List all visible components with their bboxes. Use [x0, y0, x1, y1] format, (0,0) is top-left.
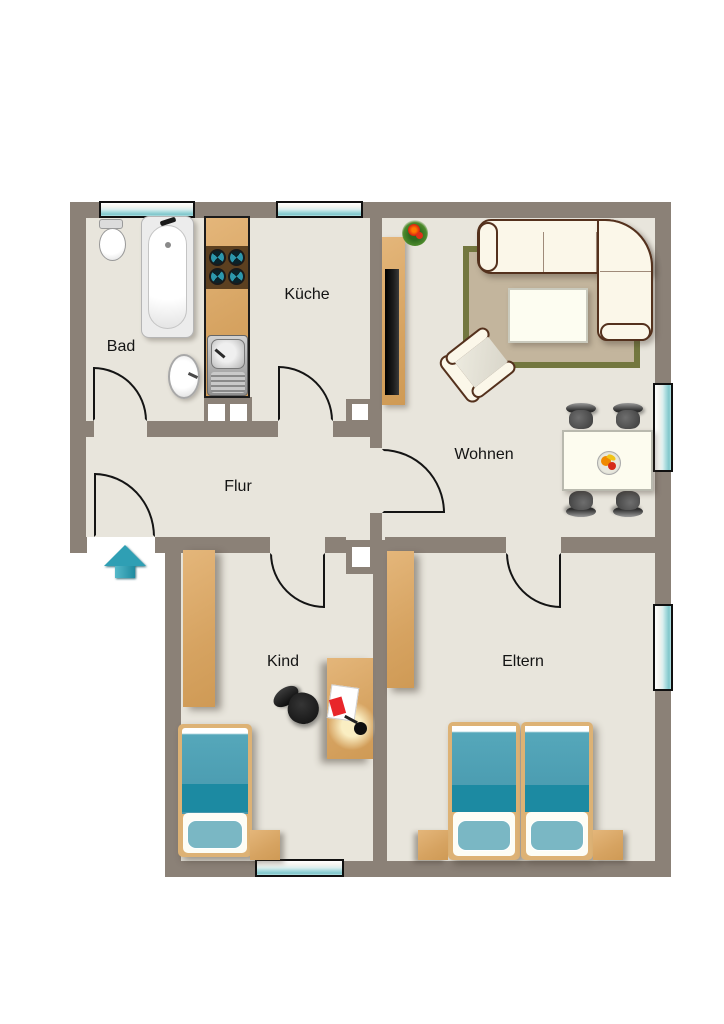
bathtub-icon — [141, 216, 194, 338]
nightstand-icon — [418, 830, 448, 860]
floor-plan: Bad Küche Flur Wohnen Kind Eltern — [0, 0, 724, 1024]
bed-icon — [178, 724, 252, 857]
stove-burner-icon — [228, 268, 245, 285]
chair-seat — [569, 491, 593, 510]
wardrobe-icon — [387, 551, 414, 688]
dining-table-icon — [562, 430, 653, 491]
bathtub-inner — [148, 225, 187, 329]
plant-flower — [416, 232, 423, 239]
wall-kind-eltern — [373, 553, 387, 861]
nightstand-icon — [250, 830, 280, 860]
arrow-head — [104, 545, 146, 566]
stove-icon — [206, 246, 248, 289]
duct-shaft — [352, 547, 370, 567]
sink-basin — [211, 339, 245, 369]
wall-bad-stub — [86, 421, 94, 437]
stove-burner-icon — [209, 268, 226, 285]
nightstand-icon — [593, 830, 623, 860]
bed-band — [182, 784, 248, 812]
stove-burner-icon — [209, 249, 226, 266]
window-eltern — [653, 604, 673, 691]
room-label-wohnen: Wohnen — [454, 446, 513, 464]
plant-icon — [402, 220, 428, 246]
sofa-armrest — [478, 222, 498, 272]
bed-band — [525, 785, 589, 812]
sofa-seam — [543, 232, 544, 272]
kitchen-sink-icon — [207, 335, 248, 396]
arrow-stem — [115, 566, 135, 578]
double-bed-icon — [448, 722, 520, 860]
duct-shaft — [230, 404, 247, 421]
window-kueche — [276, 201, 363, 218]
chair-seat — [616, 491, 640, 510]
bathroom-sink-icon — [168, 354, 200, 399]
chair-icon — [613, 403, 643, 429]
pillow — [530, 820, 584, 851]
pillow — [457, 820, 511, 851]
chair-icon — [566, 491, 596, 517]
wall-mid-b — [325, 537, 346, 553]
chair-seat — [616, 410, 640, 429]
wall-right — [655, 202, 671, 877]
sofa-armrest — [600, 323, 651, 341]
room-label-bad: Bad — [107, 338, 135, 356]
desk-icon — [327, 658, 373, 759]
window-wohnen — [653, 383, 673, 472]
duct-shaft — [208, 404, 225, 421]
tv-icon — [385, 269, 399, 395]
wall-bottom — [165, 861, 671, 877]
sink-drainboard — [211, 372, 245, 393]
wardrobe-icon — [183, 550, 215, 707]
window-kind — [255, 859, 344, 877]
wall-bad-kueche — [147, 421, 278, 437]
coffee-table-icon — [508, 288, 588, 343]
pillow — [187, 820, 243, 849]
room-label-kueche: Küche — [284, 286, 329, 304]
wall-mid-d — [561, 537, 655, 553]
chair-icon — [566, 403, 596, 429]
fruit-apple — [608, 462, 616, 470]
toilet-bowl-icon — [99, 228, 126, 261]
chair-seat — [569, 410, 593, 429]
room-label-flur: Flur — [224, 478, 252, 496]
sofa-seam — [596, 232, 597, 272]
wall-left — [70, 202, 86, 553]
wall-entry-left — [70, 537, 87, 553]
sink-faucet-icon — [188, 372, 198, 379]
fruit-bowl-icon — [597, 451, 621, 475]
room-label-eltern: Eltern — [502, 653, 544, 671]
duct-shaft — [352, 404, 368, 420]
chair-icon — [613, 491, 643, 517]
bathtub-drain — [165, 242, 171, 248]
wall-entry-right — [155, 537, 181, 553]
sofa-seam — [600, 271, 651, 272]
office-chair-icon — [272, 684, 322, 730]
bed-band — [452, 785, 516, 812]
double-bed-icon — [521, 722, 593, 860]
entrance-arrow-icon — [104, 545, 146, 579]
room-label-kind: Kind — [267, 653, 299, 671]
stove-burner-icon — [228, 249, 245, 266]
